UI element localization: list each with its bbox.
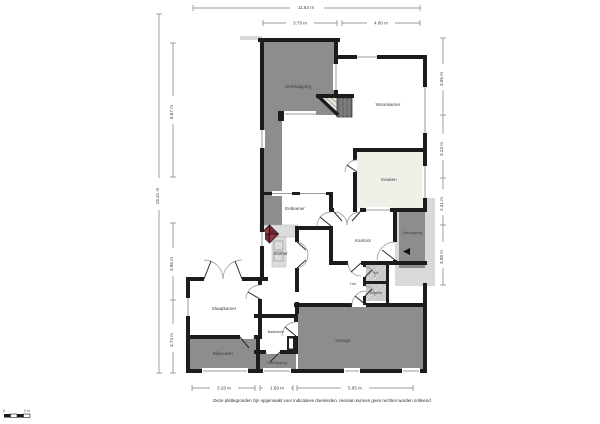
room-label-wc: Wc [373,271,378,275]
room-label-badkamer: Badkamer [268,330,285,334]
room-label-kantoor: Kantoor [355,238,372,243]
room-label-woonkamer: Woonkamer [376,102,401,107]
room-label-douche: Douche [370,291,382,295]
dim-bottom-right: 5.95 m [348,386,362,391]
window [263,368,291,374]
room-label-overkapping-nw: Overkapping [285,84,311,89]
window [272,191,292,196]
window [422,166,428,198]
dim-top-right: 4.00 m [374,21,388,26]
floorplan-drawing: Overkapping Woonkamer Keuken Eetkamer Ka… [0,0,600,424]
dim-left-total: 18.41 m [155,188,160,205]
window [422,87,428,133]
window [259,232,265,246]
dim-left-lower: 3.74 m [169,333,174,347]
stairs-icon [337,98,352,117]
dim-right-3: 2.41 m [439,197,444,211]
door [345,160,357,172]
scale-segment [4,414,11,418]
room-label-slaapkamer: Slaapkamer [212,306,237,311]
door [348,263,361,276]
dim-right-4: 3.08 m [439,250,444,264]
window [202,368,248,374]
double-door [334,212,360,225]
window [284,111,316,117]
dim-left-upper: 6.87 m [169,105,174,119]
garage-fill [298,307,423,369]
scale-end-label: 2 m [24,409,30,413]
window [300,191,326,196]
overkapping-east-fill [399,206,425,268]
room-label-keuken: Keuken [381,177,397,182]
room-label-bijkeuken: Bijkeuken [213,351,233,356]
disclaimer-text: Deze plattegronden zijn opgemaakt voor i… [213,398,431,403]
french-doors [204,260,242,279]
dim-top-left: 3.79 m [293,21,307,26]
double-door [297,242,308,268]
door [377,242,395,260]
room-label-hal: Hal [350,282,356,286]
door [317,212,331,226]
window [366,207,390,213]
shower-icon [287,336,295,351]
floorplan-page: Overkapping Woonkamer Keuken Eetkamer Ka… [0,0,600,424]
window [402,368,420,374]
dim-right-2: 3.23 m [439,142,444,156]
window [185,298,191,316]
dim-right-1: 3.95 m [439,72,444,86]
scale-segment [24,414,31,418]
room-label-overkapping-zuid: Overkapping [267,361,287,365]
room-label-kamer: Kamer [274,251,288,256]
room-label-garage: Garage [335,338,351,343]
room-fills [190,36,435,369]
window [333,64,339,90]
scale-start-label: 0 [3,409,5,413]
room-label-overkapping-oost: Overkapping [402,231,422,235]
dim-bottom-left: 3.28 m [217,386,231,391]
west-corridor-fill [264,115,282,227]
scale-segment [17,414,24,418]
dim-left-mid: 3.95 m [169,257,174,271]
dim-bottom-mid: 1.69 m [270,386,284,391]
window [259,130,265,148]
window [344,368,360,374]
scale-segment [11,414,18,418]
dim-top-total: 11.64 m [298,5,314,10]
door [246,285,260,299]
window [357,54,377,60]
scale-bar: 0 2 m [3,409,30,418]
room-label-eetkamer: Eetkamer [285,206,305,211]
